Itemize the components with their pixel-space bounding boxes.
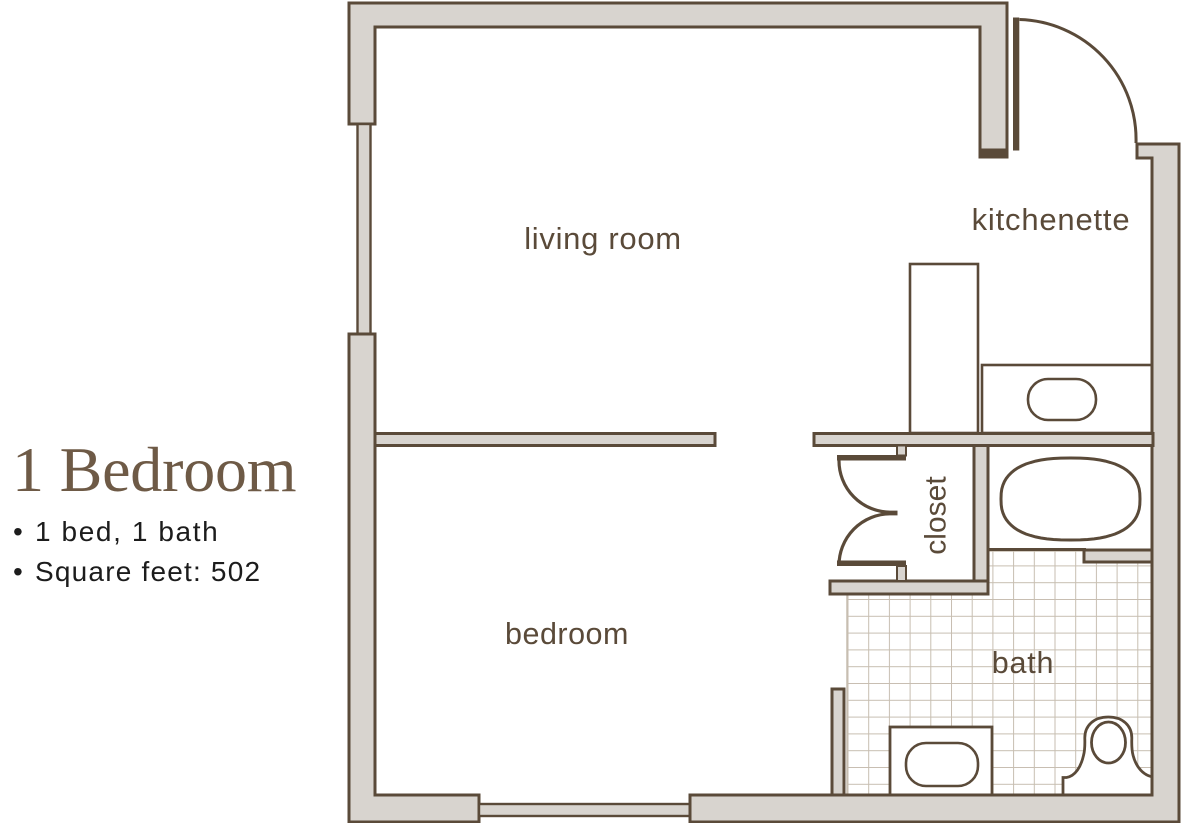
svg-text:1 Bedroom: 1 Bedroom: [12, 434, 296, 505]
svg-text:kitchenette: kitchenette: [972, 202, 1131, 237]
svg-text:Square feet: 502: Square feet: 502: [35, 556, 261, 587]
svg-text:1 bed, 1 bath: 1 bed, 1 bath: [35, 516, 219, 547]
svg-text:•: •: [13, 556, 23, 587]
svg-text:bedroom: bedroom: [505, 617, 629, 651]
svg-text:•: •: [13, 516, 23, 547]
svg-text:bath: bath: [992, 646, 1055, 680]
svg-text:living room: living room: [524, 221, 682, 256]
svg-text:closet: closet: [920, 476, 953, 555]
